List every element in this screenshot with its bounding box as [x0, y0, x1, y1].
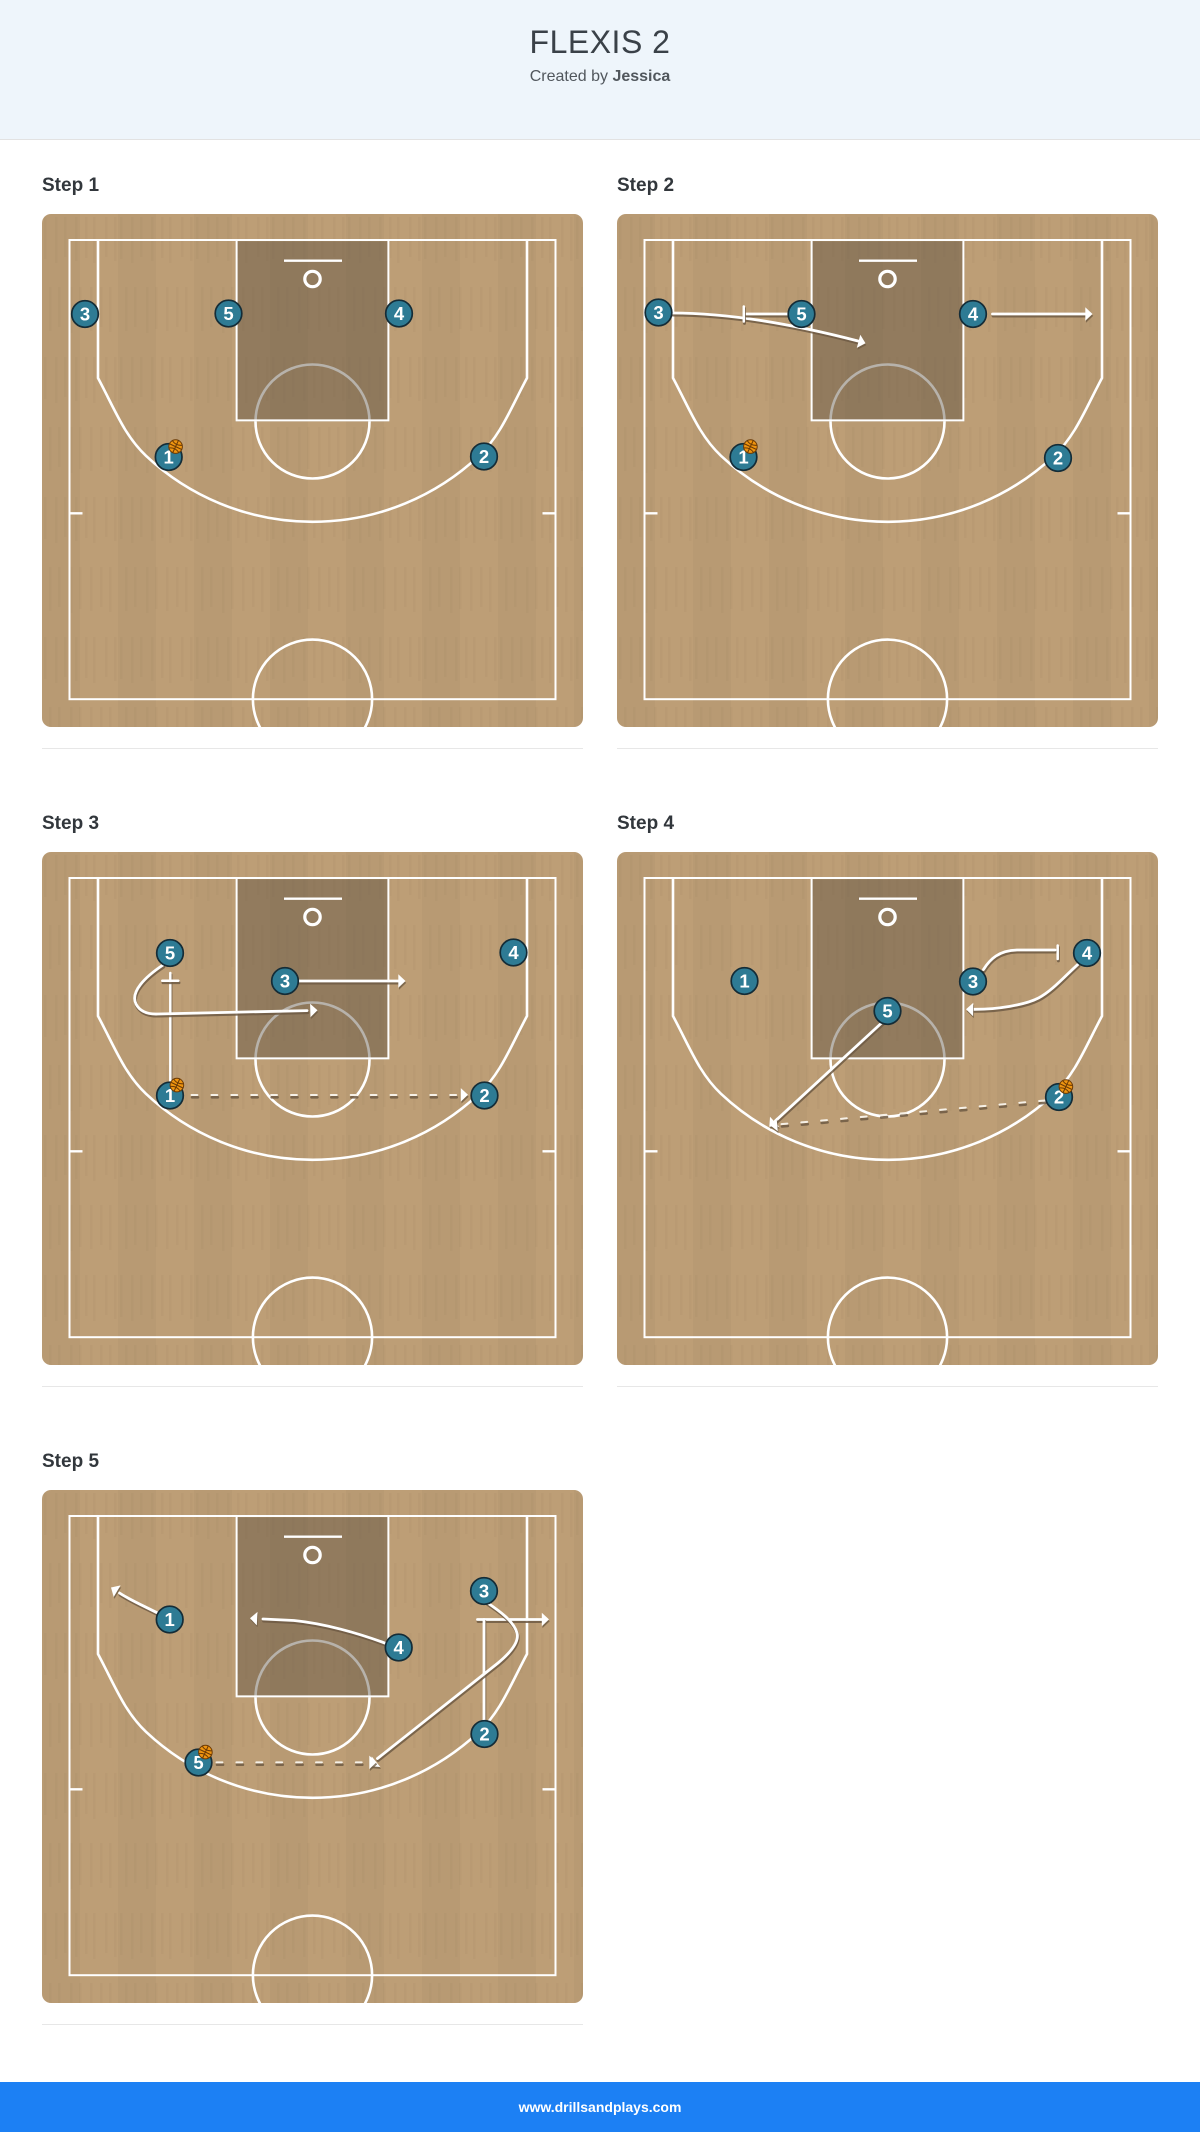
svg-text:3: 3 — [653, 302, 663, 323]
svg-text:2: 2 — [479, 1085, 489, 1106]
svg-text:2: 2 — [479, 1723, 489, 1744]
svg-text:4: 4 — [394, 1637, 405, 1658]
svg-text:3: 3 — [968, 971, 978, 992]
svg-text:5: 5 — [223, 303, 233, 324]
svg-text:4: 4 — [394, 303, 405, 324]
svg-text:4: 4 — [1082, 942, 1093, 963]
svg-text:1: 1 — [165, 1609, 175, 1630]
svg-text:3: 3 — [280, 970, 290, 991]
svg-text:5: 5 — [796, 303, 806, 324]
svg-text:4: 4 — [968, 303, 979, 324]
svg-text:3: 3 — [479, 1580, 489, 1601]
svg-text:5: 5 — [882, 1000, 892, 1021]
svg-text:4: 4 — [508, 942, 519, 963]
svg-text:2: 2 — [1053, 447, 1063, 468]
svg-text:1: 1 — [739, 970, 749, 991]
svg-text:3: 3 — [80, 303, 90, 324]
svg-text:2: 2 — [479, 446, 489, 467]
svg-text:5: 5 — [165, 942, 175, 963]
